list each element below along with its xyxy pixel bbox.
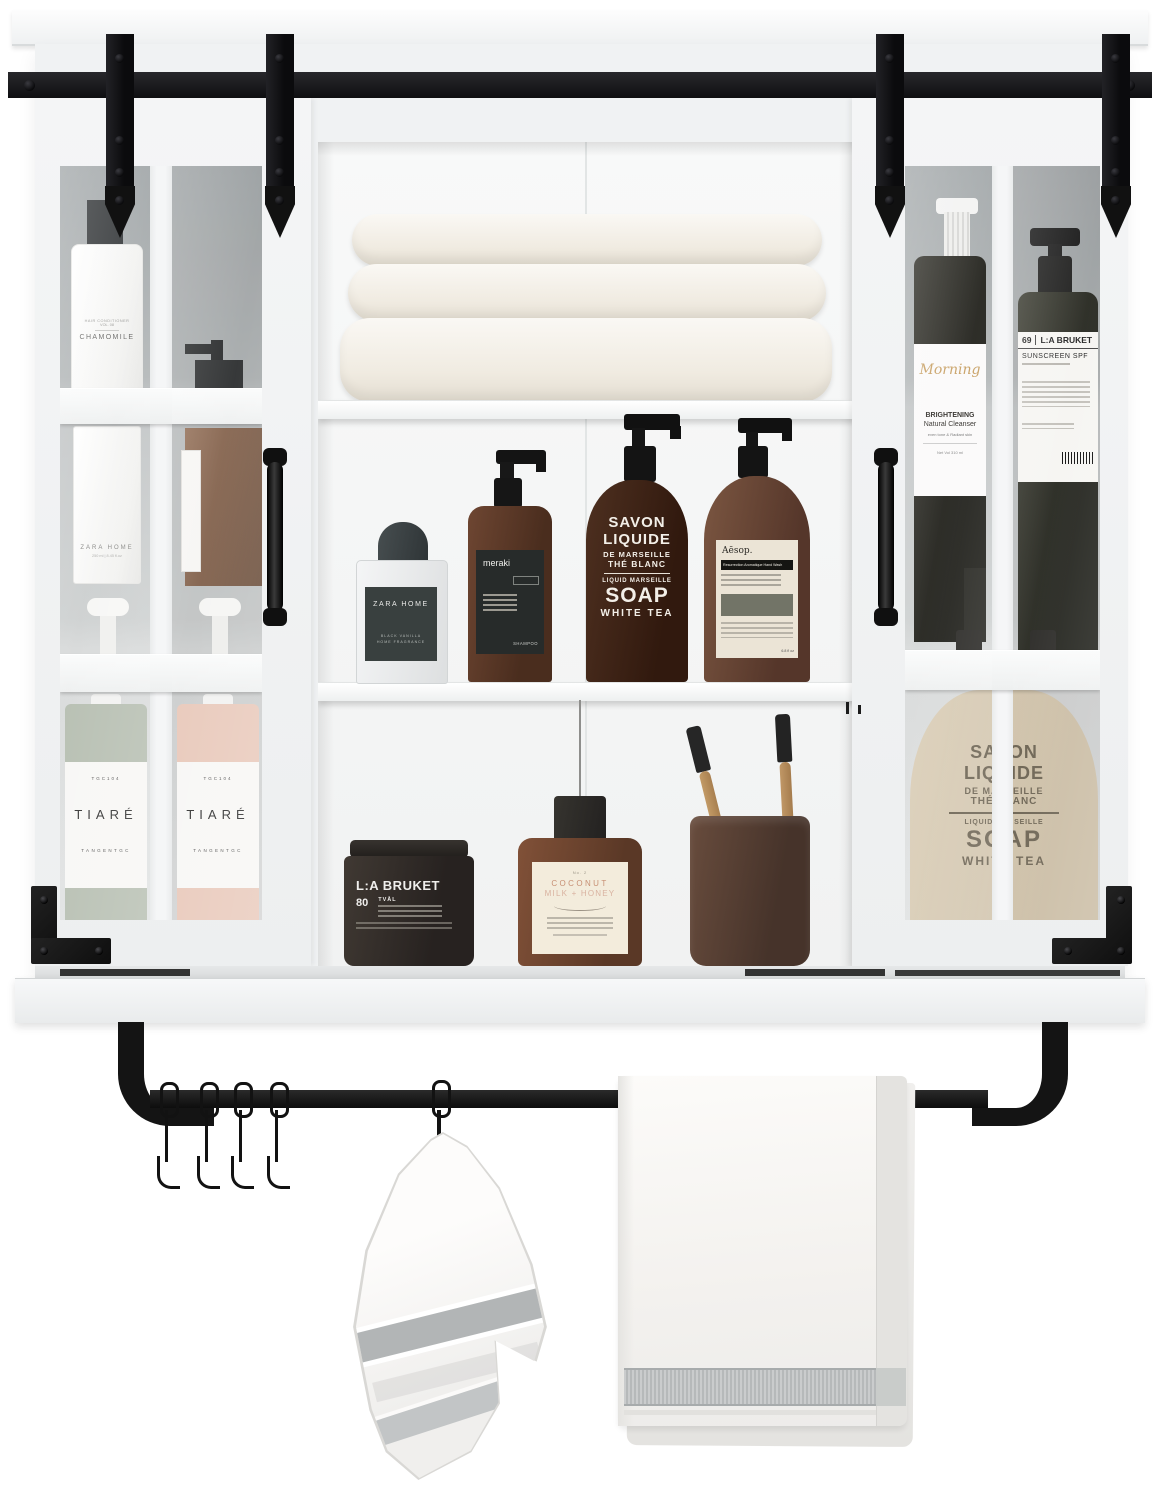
tiare-a-label: TGC104 TIARÉ TANGENTGC xyxy=(65,762,147,888)
right-door-center-stile xyxy=(992,166,1013,920)
bodywash-hanging-wire xyxy=(579,700,581,800)
jar-footer-bars xyxy=(356,922,452,930)
tiare-a-brand: TANGENTGC xyxy=(65,848,147,853)
sunscreen-type: SUNSCREEN SPF xyxy=(1022,353,1098,360)
sunscreen-brand: L:A BRUKET xyxy=(1036,335,1092,345)
cap-nub xyxy=(1030,630,1056,650)
pump-cap-dome-2 xyxy=(199,598,241,616)
hanger-rivet xyxy=(275,136,284,145)
s-hook[interactable] xyxy=(200,1082,219,1118)
gap-shadow-segment xyxy=(745,969,885,976)
pump-cap-dome-1 xyxy=(87,598,129,616)
conditioner-rule xyxy=(95,330,119,331)
s-hook[interactable] xyxy=(270,1082,289,1118)
zara-brand: ZARA HOME xyxy=(74,545,140,551)
gap-shadow-segment xyxy=(60,969,190,976)
handwash-title: Resurrection Aromatique Hand Wash xyxy=(723,563,782,567)
cleanser-l3: even tone & Radiant skin xyxy=(914,432,986,437)
handwash-bottle: Aēsop. Resurrection Aromatique Hand Wash… xyxy=(704,476,810,682)
dispenser-spout xyxy=(185,344,213,354)
fragrance-bottle: ZARA HOME BLACK VANILLA HOME FRAGRANCE xyxy=(356,560,448,684)
s-hook-stem xyxy=(275,1110,278,1162)
fragrance-label: ZARA HOME BLACK VANILLA HOME FRAGRANCE xyxy=(365,587,437,661)
sunscreen-bottle: 69 L:A BRUKET SUNSCREEN SPF xyxy=(1018,292,1098,652)
handwash-pump-collar xyxy=(738,446,768,478)
sunscreen-text-bars xyxy=(1022,381,1090,407)
conditioner-line2: VOL. 08 xyxy=(72,323,142,327)
s-hook[interactable] xyxy=(234,1082,253,1118)
cabinet-open-compartment: ZARA HOME BLACK VANILLA HOME FRAGRANCE m… xyxy=(318,142,855,966)
hanger-rivet xyxy=(115,168,124,177)
tiare-a-name: TIARÉ xyxy=(65,807,147,822)
folded-towel-bottom xyxy=(340,318,832,402)
sliding-door-left[interactable]: HAIR CONDITIONER VOL. 08 CHAMOMILE ZARA … xyxy=(35,98,311,966)
soap-pump-stem xyxy=(632,428,645,448)
s-hook-curve xyxy=(267,1156,290,1189)
left-door-handle-bottom-mount xyxy=(263,608,287,626)
jar-brand: L:A BRUKET xyxy=(356,878,474,893)
cleanser-label: Morning BRIGHTENING Natural Cleanser eve… xyxy=(914,344,986,496)
zara-size: 250 ml | 8.45 fl.oz xyxy=(74,554,140,558)
tiare-b-brand: TANGENTGC xyxy=(177,848,259,853)
pump-cap-stem-2 xyxy=(212,616,228,654)
left-door-handle[interactable] xyxy=(267,462,283,612)
shelf-board-upper xyxy=(318,400,855,419)
left-door-glass-zone: HAIR CONDITIONER VOL. 08 CHAMOMILE ZARA … xyxy=(60,166,262,920)
jar-text-bars xyxy=(378,905,442,917)
gap-shadow-segment xyxy=(895,970,1120,976)
left-door-shelf-front-1 xyxy=(60,388,262,424)
folded-towel-top xyxy=(352,214,822,266)
shelf-board-lower xyxy=(318,682,855,701)
product-photo-wall-cabinet: ZARA HOME BLACK VANILLA HOME FRAGRANCE m… xyxy=(0,0,1160,1500)
handwash-label: Aēsop. Resurrection Aromatique Hand Wash… xyxy=(716,540,798,658)
left-door-shelf-front-2 xyxy=(60,654,262,692)
bracket-screw xyxy=(1064,947,1072,955)
tiare-b-label: TGC104 TIARÉ TANGENTGC xyxy=(177,762,259,888)
bracket-screw xyxy=(1117,896,1125,904)
soap-l2: LIQUIDE xyxy=(586,531,688,548)
bodywash-label: No. 2 COCONUT MILK + HONEY xyxy=(532,862,628,954)
zara-bottle: ZARA HOME 250 ml | 8.45 fl.oz xyxy=(73,426,141,584)
soap-l7: WHITE TEA xyxy=(586,608,688,619)
hanger-rivet xyxy=(275,168,284,177)
large-bath-towel[interactable] xyxy=(618,1076,922,1454)
conditioner-bottle: HAIR CONDITIONER VOL. 08 CHAMOMILE xyxy=(71,244,143,390)
soap-pump-collar xyxy=(624,446,656,482)
shampoo-type: SHAMPOO xyxy=(513,641,538,646)
shampoo-brand: meraki xyxy=(483,558,544,568)
s-hook-with-towel[interactable] xyxy=(432,1080,451,1118)
s-hook-curve xyxy=(231,1156,254,1189)
bodywash-l1: COCONUT xyxy=(532,879,628,888)
right-door-glass-zone: Morning BRIGHTENING Natural Cleanser eve… xyxy=(905,166,1100,920)
tiare-b-code: TGC104 xyxy=(177,776,259,781)
right-door-handle[interactable] xyxy=(878,462,894,612)
barn-door-track xyxy=(8,72,1152,98)
soap-l1: SAVON xyxy=(586,514,688,531)
jar-type: TVÅL xyxy=(378,897,442,903)
hanger-rivet xyxy=(1111,136,1120,145)
bodywash-script-line xyxy=(554,901,606,911)
left-door-center-stile xyxy=(150,166,172,920)
bodywash-l2: MILK + HONEY xyxy=(532,889,628,898)
bodywash-bottle: No. 2 COCONUT MILK + HONEY xyxy=(518,838,642,966)
sunscreen-footer-bar xyxy=(1022,423,1074,429)
dispenser-stem xyxy=(211,340,223,362)
cabinet-crown-top xyxy=(12,10,1148,46)
hanger-rivet xyxy=(1111,196,1120,205)
fragrance-brand: ZARA HOME xyxy=(365,601,437,608)
cap-nub xyxy=(956,630,982,650)
sunscreen-num: 69 xyxy=(1018,335,1036,345)
hanger-rivet xyxy=(115,54,124,63)
cabinet-bottom-board xyxy=(15,978,1145,1023)
handwash-pump-tip xyxy=(782,429,792,441)
handwash-green-block xyxy=(721,594,793,616)
sunscreen-subline-bar xyxy=(1022,363,1070,367)
bodywash-cap xyxy=(554,796,606,842)
hanger-rivet xyxy=(885,54,894,63)
toothbrush-cup xyxy=(690,816,810,966)
bodywash-footer-bar xyxy=(553,934,607,938)
cleanser-script: Morning xyxy=(914,362,986,378)
s-hook-stem xyxy=(239,1110,242,1162)
hanger-rivet xyxy=(1111,54,1120,63)
fragrance-line2: HOME FRAGRANCE xyxy=(365,640,437,644)
cleanser-rule xyxy=(923,443,977,444)
handwash-size: 6.8 fl oz xyxy=(781,649,794,653)
pump-cap-stem-1 xyxy=(100,616,116,654)
cleanser-l4: Net Vol 310 ml xyxy=(914,450,986,455)
handwash-brand: Aēsop. xyxy=(722,546,798,556)
conditioner-name: CHAMOMILE xyxy=(72,334,142,341)
track-end-bolt-left xyxy=(24,80,35,91)
jar-num: 80 xyxy=(356,897,368,917)
soap-l3: DE MARSEILLE xyxy=(586,550,688,559)
hanger-rivet xyxy=(885,168,894,177)
dispenser-body xyxy=(195,360,243,388)
bodywash-text-bars xyxy=(547,917,613,929)
cleanser-l2: Natural Cleanser xyxy=(914,421,986,428)
sunscreen-barcode-icon xyxy=(1062,452,1094,464)
shampoo-label: meraki SHAMPOO xyxy=(476,550,544,654)
hanger-rivet xyxy=(275,54,284,63)
door-edge-mark xyxy=(858,705,861,714)
large-towel-hem xyxy=(624,1410,876,1415)
hanger-rivet xyxy=(115,136,124,145)
tiare-a-bottle: TGC104 TIARÉ TANGENTGC xyxy=(65,704,147,920)
handwash-title-bar: Resurrection Aromatique Hand Wash xyxy=(721,560,793,570)
tiare-a-code: TGC104 xyxy=(65,776,147,781)
hanger-rivet xyxy=(885,136,894,145)
cleanser-pump-collar xyxy=(944,212,970,258)
large-towel-band-side xyxy=(876,1368,906,1406)
hanger-rivet xyxy=(1111,168,1120,177)
s-hook-curve xyxy=(157,1156,180,1189)
bracket-screw xyxy=(40,947,48,955)
right-door-handle-bottom-mount xyxy=(874,608,898,626)
soap-bottle: SAVON LIQUIDE DE MARSEILLE THÉ BLANC LIQ… xyxy=(586,480,688,682)
soap-l4: THÉ BLANC xyxy=(586,559,688,569)
soap-rule xyxy=(604,573,670,574)
large-towel-band xyxy=(624,1368,876,1406)
toothbrush-2-bristles-icon xyxy=(775,714,792,763)
hanger-rivet xyxy=(275,196,284,205)
sunscreen-pump-collar xyxy=(1038,256,1072,296)
soap-l6: SOAP xyxy=(586,584,688,608)
small-hand-towel[interactable] xyxy=(352,1134,550,1486)
toothbrush-1-bristles-icon xyxy=(685,725,711,773)
bracket-screw xyxy=(1117,947,1125,955)
towel-bar-right-elbow xyxy=(972,1022,1068,1126)
shampoo-bottle: meraki SHAMPOO xyxy=(468,506,552,682)
interior-left-wall xyxy=(318,142,334,966)
fragrance-line1: BLACK VANILLA xyxy=(365,634,437,638)
bodywash-num: No. 2 xyxy=(532,870,628,875)
cleanser-l1: BRIGHTENING xyxy=(914,412,986,419)
right-door-shelf-front xyxy=(905,650,1100,690)
handwash-text-bars2 xyxy=(721,622,793,638)
sunscreen-label: 69 L:A BRUKET SUNSCREEN SPF xyxy=(1018,332,1098,482)
s-hook-curve xyxy=(197,1156,220,1189)
tiare-b-name: TIARÉ xyxy=(177,807,259,822)
soap-pump-tip xyxy=(670,426,681,439)
handwash-text-bars1 xyxy=(721,574,781,588)
shampoo-text-bars xyxy=(483,594,517,612)
tiare-b-bottle: TGC104 TIARÉ TANGENTGC xyxy=(177,704,259,920)
interior-top-shadow xyxy=(318,142,855,156)
s-hook[interactable] xyxy=(160,1082,179,1118)
small-towel-body xyxy=(352,1134,550,1478)
jar-body: L:A BRUKET 80 TVÅL xyxy=(344,856,474,966)
bracket-screw xyxy=(95,947,103,955)
s-hook-stem xyxy=(165,1110,168,1162)
folded-towel-middle xyxy=(348,264,826,322)
hanger-rivet xyxy=(885,196,894,205)
large-towel-front-layer xyxy=(618,1076,906,1426)
s-hook-stem xyxy=(205,1110,208,1162)
shampoo-pump-tip xyxy=(536,460,546,472)
hanger-rivet xyxy=(115,196,124,205)
shampoo-tag xyxy=(513,576,539,585)
door-edge-mark xyxy=(846,702,849,714)
shampoo-pump-collar xyxy=(494,478,522,508)
white-card xyxy=(181,450,201,572)
bracket-screw xyxy=(40,896,48,904)
